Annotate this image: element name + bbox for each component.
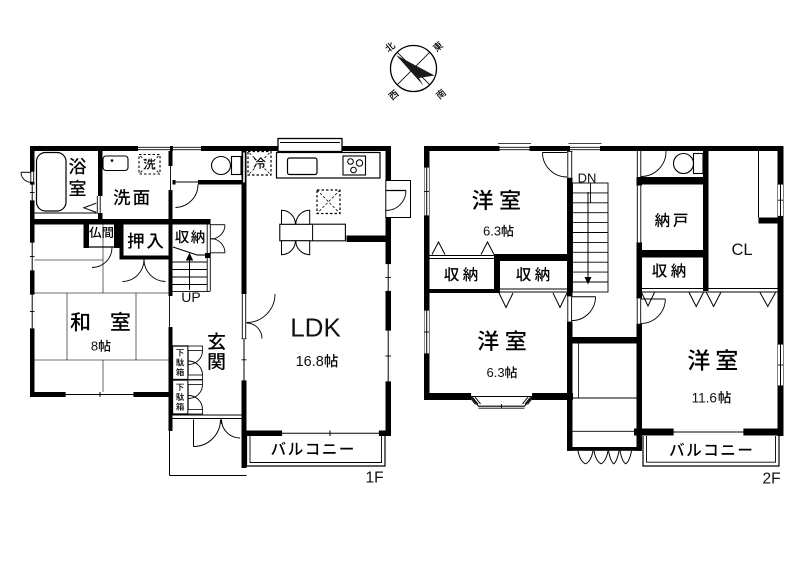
svg-text:6.3: 6.3 [487, 365, 505, 380]
svg-text:2F: 2F [762, 471, 780, 488]
svg-text:UP: UP [181, 289, 200, 305]
svg-text:8: 8 [91, 339, 98, 354]
svg-text:6.3: 6.3 [483, 224, 501, 239]
svg-text:DN: DN [578, 171, 597, 186]
svg-text:11.6: 11.6 [692, 390, 717, 405]
svg-text:16.8: 16.8 [296, 354, 324, 370]
svg-text:LDK: LDK [290, 312, 341, 342]
svg-text:1F: 1F [365, 470, 383, 487]
svg-text:CL: CL [731, 241, 752, 259]
